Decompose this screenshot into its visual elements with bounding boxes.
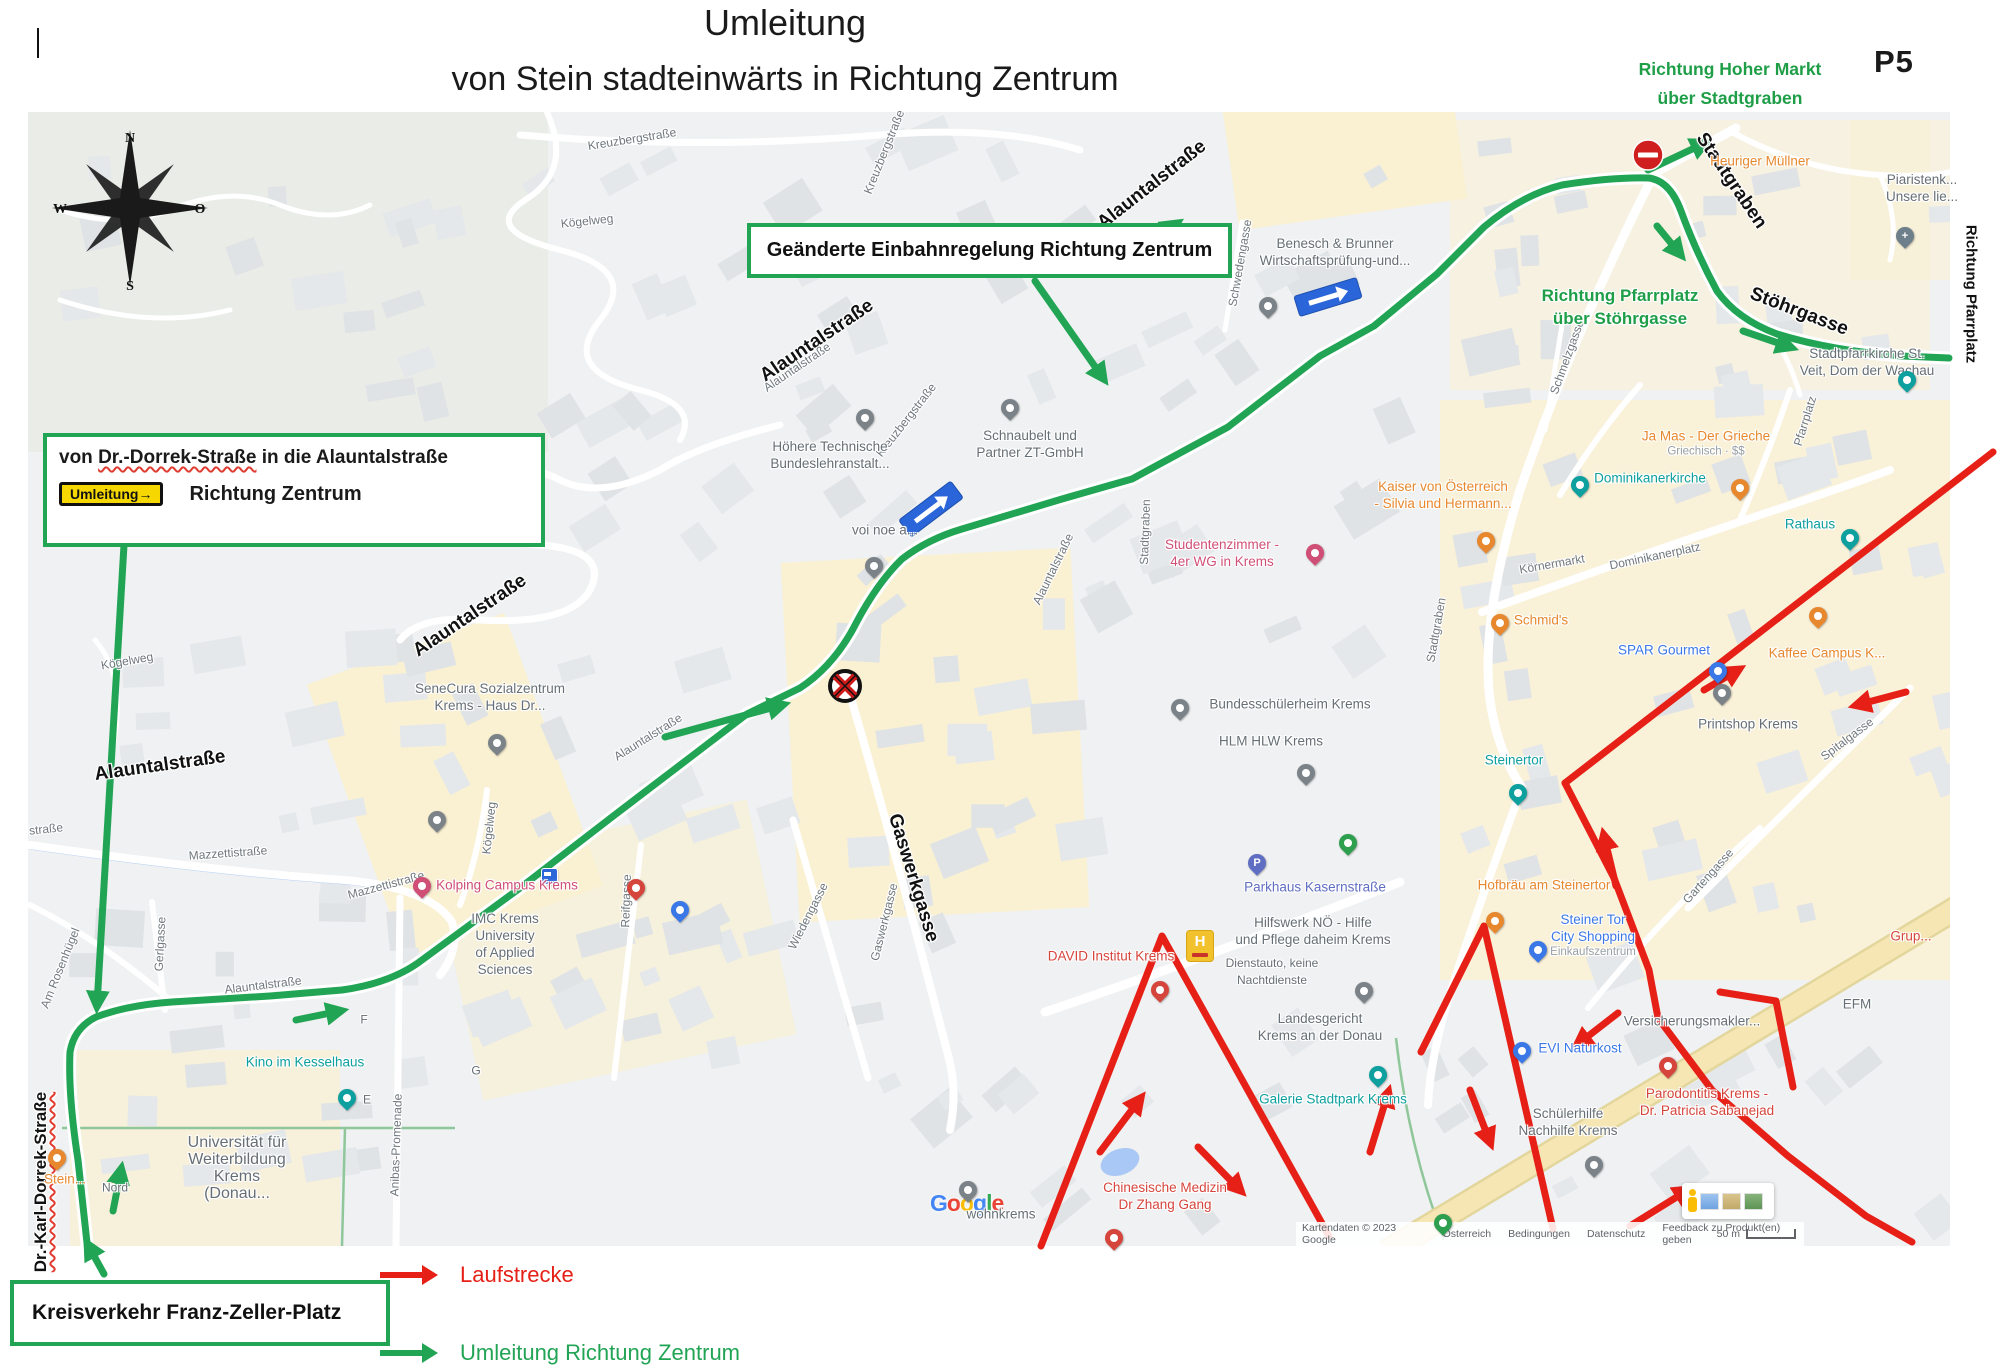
legend-item: Laufstrecke: [380, 1262, 574, 1288]
annotation-box-einbahnregelung: Geänderte Einbahnregelung Richtung Zentr…: [747, 223, 1232, 278]
legend-item: Umleitung Richtung Zentrum: [380, 1340, 740, 1366]
annotation-box-dorrek: von Dr.-Dorrek-Straße in die Alauntalstr…: [43, 433, 545, 547]
map-base-layer: [28, 112, 1950, 1246]
street-label: Richtung Pfarrplatz: [1963, 225, 1980, 363]
map-canvas[interactable]: [28, 112, 1950, 1246]
umleitung-sign: Umleitung→: [59, 482, 163, 506]
legend-arrow-icon: [380, 1265, 438, 1285]
legend-label: Umleitung Richtung Zentrum: [460, 1340, 740, 1366]
page-subtitle: von Stein stadteinwärts in Richtung Zent…: [451, 60, 1118, 99]
annotation-box-kreisverkehr: Kreisverkehr Franz-Zeller-Platz: [10, 1280, 390, 1346]
note-hoher-markt: Richtung Hoher Marktüber Stadtgraben: [1639, 55, 1822, 113]
page-title: Umleitung: [704, 2, 866, 44]
page-number: P5: [1874, 44, 1914, 80]
legend-label: Laufstrecke: [460, 1262, 574, 1288]
page: { "header": { "title": "Umleitung", "sub…: [0, 0, 2000, 1368]
text-cursor: [37, 28, 39, 58]
legend-arrow-icon: [380, 1343, 438, 1363]
